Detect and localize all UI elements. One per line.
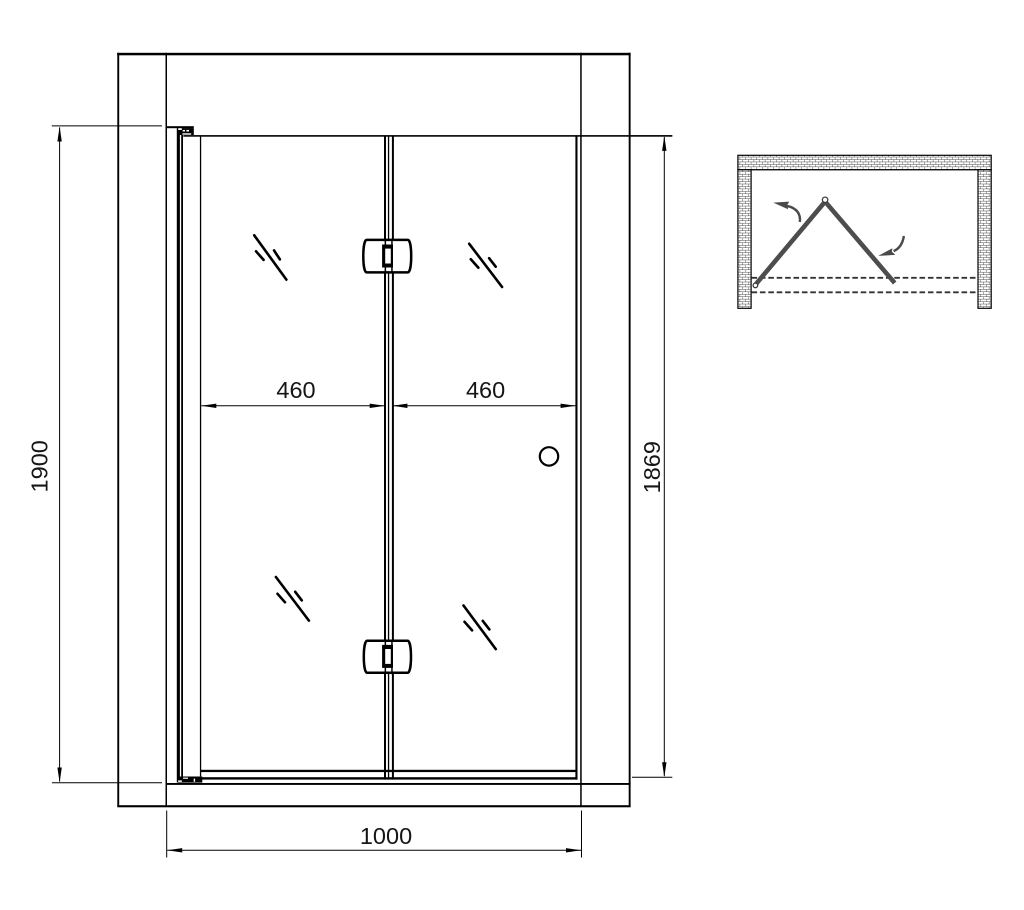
svg-text:1000: 1000 (360, 823, 412, 849)
svg-text:1900: 1900 (26, 440, 52, 492)
svg-text:1869: 1869 (639, 441, 665, 493)
svg-text:460: 460 (276, 377, 315, 403)
svg-text:460: 460 (466, 377, 505, 403)
